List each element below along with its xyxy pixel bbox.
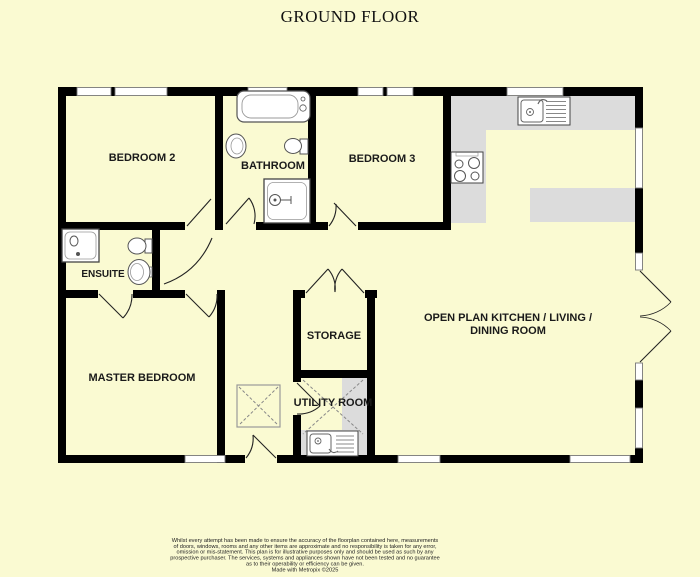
rooflight-icon bbox=[237, 385, 280, 427]
bath-toilet-icon bbox=[285, 139, 309, 155]
hob-icon bbox=[451, 152, 483, 183]
credit-line: Made with Metropix ©2025 bbox=[0, 567, 655, 573]
room-label-ensuite: ENSUITE bbox=[81, 269, 125, 280]
kitchen-sink-icon bbox=[518, 97, 570, 125]
bath-shower-icon bbox=[264, 179, 310, 223]
room-label-bathroom: BATHROOM bbox=[241, 160, 305, 172]
room-label-utility: UTILITY ROOM bbox=[294, 397, 373, 409]
bath-basin-icon bbox=[226, 134, 246, 158]
utility-sink-icon bbox=[307, 431, 358, 456]
room-label-master-bedroom: MASTER BEDROOM bbox=[89, 372, 196, 384]
ensuite-shower-icon bbox=[62, 229, 99, 262]
door-arcs bbox=[99, 198, 671, 458]
floorplan: BEDROOM 2 BATHROOM BEDROOM 3 ENSUITE MAS… bbox=[0, 0, 700, 577]
ensuite-basin-icon bbox=[128, 260, 152, 285]
room-label-storage: STORAGE bbox=[307, 330, 361, 342]
bathtub-icon bbox=[237, 91, 310, 122]
room-label-openplan-line2: DINING ROOM bbox=[470, 325, 546, 337]
room-label-bedroom3: BEDROOM 3 bbox=[349, 153, 416, 165]
disclaimer: Whilst every attempt has been made to en… bbox=[0, 538, 655, 573]
ensuite-toilet-icon bbox=[128, 238, 152, 254]
room-label-bedroom2: BEDROOM 2 bbox=[109, 152, 176, 164]
room-label-openplan-line1: OPEN PLAN KITCHEN / LIVING / bbox=[424, 312, 592, 324]
